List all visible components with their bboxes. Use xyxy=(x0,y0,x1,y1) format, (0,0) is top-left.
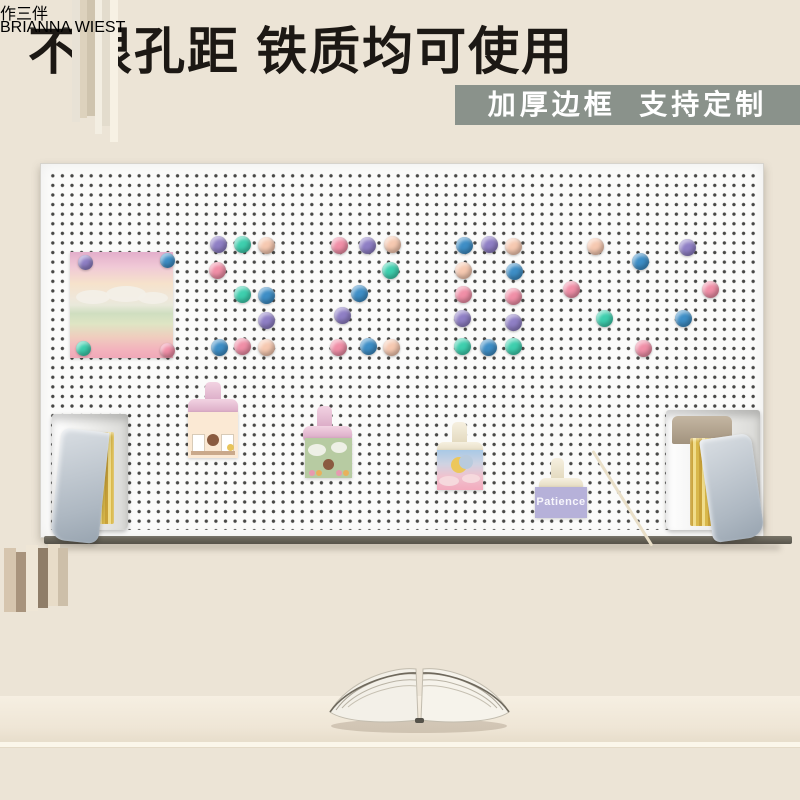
leaf-shape xyxy=(214,564,230,601)
duck-shape xyxy=(227,444,234,451)
book-spine xyxy=(80,0,87,118)
flower-dot xyxy=(309,470,315,476)
stacked-book-title: BRIANNA WIEST xyxy=(0,19,125,36)
note-card-patience: Patience xyxy=(535,487,587,518)
mini-book-shape xyxy=(192,434,205,452)
flower-dot xyxy=(343,470,349,476)
vase-segment xyxy=(0,90,36,118)
moon-icon xyxy=(459,455,473,469)
vase-segment xyxy=(0,62,26,90)
tulip-stem xyxy=(190,553,202,600)
feature-badge: 加厚边框 支持定制 xyxy=(455,85,800,125)
cloud-shape xyxy=(138,292,168,304)
stacked-book-top: BRIANNA WIEST xyxy=(0,19,125,37)
cloud-shape xyxy=(462,474,480,483)
pegboard-shadow xyxy=(50,544,780,550)
cloud-shape xyxy=(439,476,459,486)
tulip-stem xyxy=(207,561,221,603)
magazine-file-holder xyxy=(30,594,72,710)
product-photo-scene: 不限孔距 铁质均可使用 加厚边框 支持定制 xyxy=(0,0,800,800)
leaf-shape xyxy=(182,558,198,599)
table-shape xyxy=(191,451,235,455)
cloud-shape xyxy=(331,442,347,453)
vase-segment xyxy=(0,36,36,62)
brush-pen xyxy=(462,550,465,614)
cloud-shape xyxy=(308,444,326,456)
note-card-moon-sky xyxy=(437,450,483,490)
note-card-garden-girl xyxy=(305,438,352,478)
landscape-photo-card xyxy=(70,252,173,358)
tulip-stem xyxy=(204,548,208,600)
flower-dot xyxy=(316,470,322,476)
book-spine xyxy=(87,0,95,116)
doll-head-shape xyxy=(323,459,334,470)
doll-head-shape xyxy=(207,434,219,446)
pegboard-bottom-rail xyxy=(44,536,792,544)
desk-front-panel xyxy=(0,747,800,800)
flower-dot xyxy=(336,470,342,476)
cloud-shape xyxy=(76,290,110,304)
open-book xyxy=(322,660,517,734)
brush-pen xyxy=(450,556,454,616)
note-card-reading-girl xyxy=(188,412,238,458)
